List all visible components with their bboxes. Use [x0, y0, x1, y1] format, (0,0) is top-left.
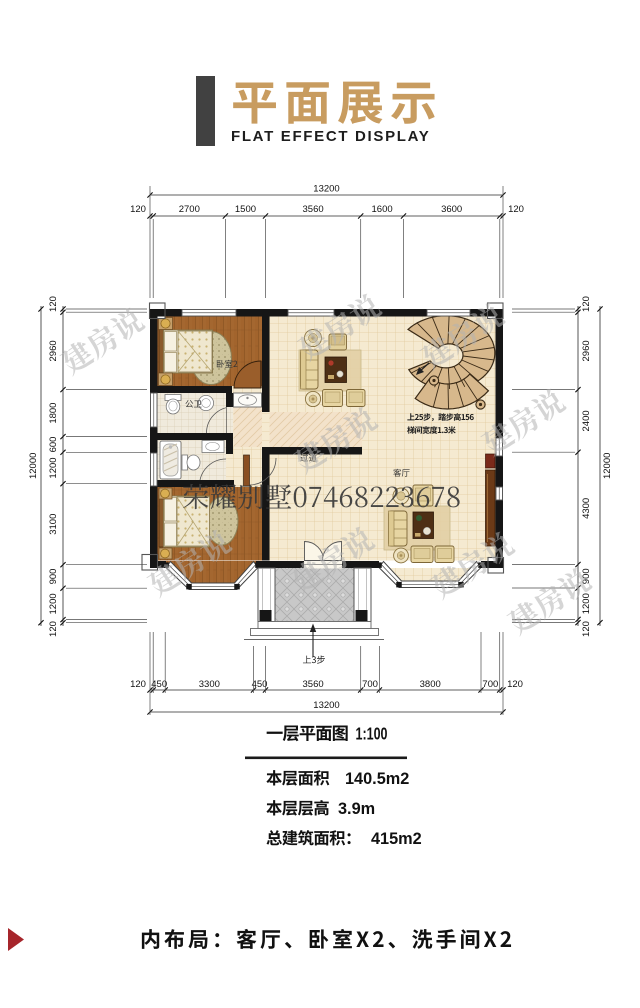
svg-text:120: 120: [48, 296, 59, 312]
svg-text:1800: 1800: [48, 403, 59, 424]
svg-text:1:100: 1:100: [356, 724, 388, 744]
svg-text:120: 120: [581, 296, 592, 312]
svg-text:FLAT EFFECT DISPLAY: FLAT EFFECT DISPLAY: [231, 128, 430, 145]
svg-text:3560: 3560: [303, 204, 324, 215]
svg-text:2960: 2960: [48, 340, 59, 361]
svg-text:1500: 1500: [235, 204, 256, 215]
svg-text:1600: 1600: [372, 204, 393, 215]
svg-text:4300: 4300: [581, 498, 592, 519]
svg-text:120: 120: [507, 679, 523, 690]
svg-text:2700: 2700: [179, 204, 200, 215]
svg-text:12000: 12000: [28, 453, 39, 479]
svg-text:12000: 12000: [602, 453, 613, 479]
svg-text:1200: 1200: [48, 457, 59, 478]
svg-text:3600: 3600: [441, 204, 462, 215]
svg-text:700: 700: [482, 679, 498, 690]
svg-text:450: 450: [252, 679, 268, 690]
svg-text:1200: 1200: [48, 593, 59, 614]
svg-text:3300: 3300: [199, 679, 220, 690]
svg-text:120: 120: [581, 621, 592, 637]
svg-text:450: 450: [151, 679, 167, 690]
svg-text:700: 700: [362, 679, 378, 690]
svg-text:13200: 13200: [313, 700, 339, 711]
svg-text:13200: 13200: [313, 184, 339, 195]
svg-text:900: 900: [48, 569, 59, 585]
svg-text:415m2: 415m2: [371, 830, 422, 848]
svg-text:120: 120: [48, 621, 59, 637]
svg-text:1200: 1200: [581, 593, 592, 614]
svg-text:3100: 3100: [48, 514, 59, 535]
svg-text:600: 600: [48, 437, 59, 453]
svg-text:120: 120: [130, 679, 146, 690]
svg-text:120: 120: [508, 204, 524, 215]
svg-text:2960: 2960: [581, 340, 592, 361]
svg-text:3800: 3800: [420, 679, 441, 690]
svg-text:140.5m2: 140.5m2: [345, 770, 409, 788]
svg-text:3560: 3560: [303, 679, 324, 690]
svg-text:2400: 2400: [581, 410, 592, 431]
svg-text:3.9m: 3.9m: [338, 800, 375, 818]
svg-text:120: 120: [130, 204, 146, 215]
